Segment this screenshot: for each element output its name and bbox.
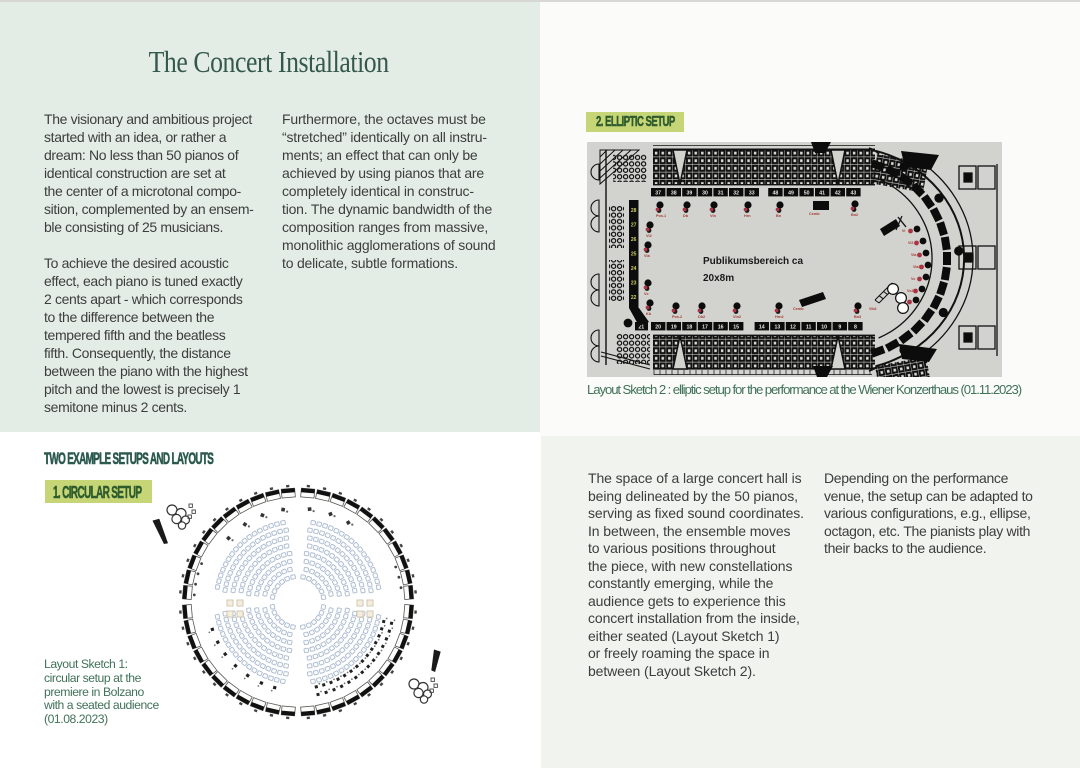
svg-text:Db: Db (683, 214, 689, 218)
svg-text:8: 8 (854, 324, 857, 330)
svg-text:23: 23 (631, 281, 637, 287)
svg-text:13: 13 (775, 324, 781, 330)
svg-text:Pos.2: Pos.2 (672, 315, 682, 319)
svg-text:22: 22 (631, 295, 637, 301)
svg-text:43: 43 (851, 190, 857, 196)
svg-text:Vla: Vla (644, 254, 651, 258)
svg-text:30: 30 (702, 190, 708, 196)
svg-text:Vln: Vln (710, 214, 717, 218)
svg-text:14: 14 (759, 324, 765, 330)
svg-text:32: 32 (733, 190, 739, 196)
svg-text:17: 17 (702, 324, 708, 330)
svg-text:Bn: Bn (776, 214, 782, 218)
svg-text:Vln2: Vln2 (733, 315, 741, 319)
svg-text:Vc: Vc (644, 292, 649, 296)
svg-text:50: 50 (804, 190, 810, 196)
svg-text:10: 10 (821, 324, 827, 330)
svg-text:48: 48 (773, 190, 779, 196)
svg-text:Publikumsbereich ca: Publikumsbereich ca (703, 256, 803, 267)
svg-text:20: 20 (655, 324, 661, 330)
svg-text:Vc2: Vc2 (907, 289, 913, 293)
svg-text:33: 33 (749, 190, 755, 196)
svg-text:Kb: Kb (646, 312, 652, 316)
svg-text:18: 18 (687, 324, 693, 330)
svg-text:Vla2: Vla2 (913, 265, 920, 269)
svg-text:24: 24 (631, 266, 637, 272)
svg-text:Vib2: Vib2 (869, 307, 877, 311)
svg-text:38: 38 (671, 190, 677, 196)
svg-text:19: 19 (671, 324, 677, 330)
svg-text:Pos.1: Pos.1 (656, 214, 666, 218)
svg-text:11: 11 (806, 324, 812, 330)
svg-text:Hrn2: Hrn2 (775, 315, 784, 319)
svg-text:15: 15 (733, 324, 739, 330)
svg-text:Vc: Vc (911, 277, 915, 281)
svg-text:41: 41 (819, 190, 825, 196)
svg-text:Bn2: Bn2 (851, 213, 858, 217)
svg-text:42: 42 (835, 190, 841, 196)
svg-text:Bn3: Bn3 (854, 315, 861, 319)
svg-text:Vl: Vl (902, 229, 905, 233)
svg-text:9: 9 (838, 324, 841, 330)
svg-text:20x8m: 20x8m (703, 273, 734, 284)
svg-text:49: 49 (788, 190, 794, 196)
svg-text:27: 27 (631, 223, 637, 229)
svg-text:28: 28 (631, 208, 637, 214)
svg-text:Cemb: Cemb (809, 212, 820, 216)
svg-text:26: 26 (631, 237, 637, 243)
svg-text:Vl2: Vl2 (646, 234, 652, 238)
svg-text:Vl2: Vl2 (908, 241, 913, 245)
svg-text:39: 39 (687, 190, 693, 196)
svg-text:31: 31 (718, 190, 724, 196)
svg-text:Hrn: Hrn (744, 214, 751, 218)
svg-text:Cemb: Cemb (793, 307, 804, 311)
svg-text:16: 16 (718, 324, 724, 330)
svg-text:25: 25 (631, 252, 637, 258)
svg-text:12: 12 (790, 324, 796, 330)
svg-text:Db2: Db2 (698, 315, 705, 319)
svg-text:37: 37 (655, 190, 661, 196)
